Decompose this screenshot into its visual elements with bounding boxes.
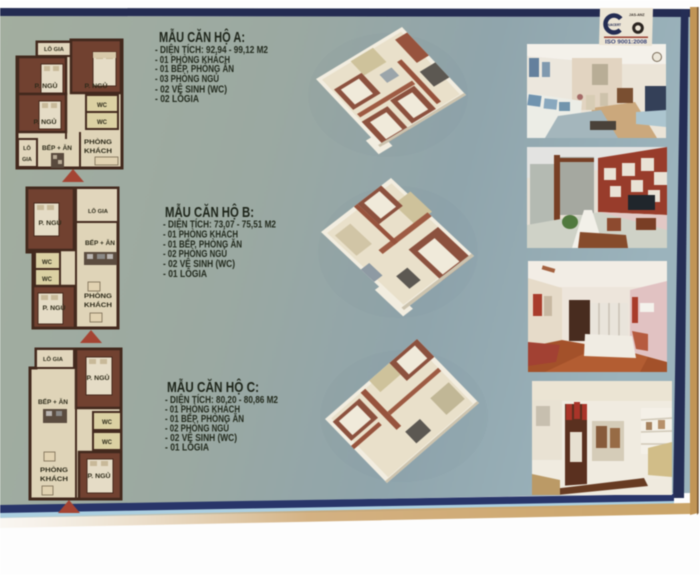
svg-text:GIA: GIA [22, 157, 32, 163]
svg-text:P. NGỦ: P. NGỦ [87, 375, 110, 382]
svg-text:LÔ GIA: LÔ GIA [44, 45, 64, 53]
svg-text:KHÁCH: KHÁCH [84, 302, 112, 309]
svg-text:- 01 LÔGIA: - 01 LÔGIA [163, 267, 207, 280]
svg-text:WC: WC [102, 420, 113, 426]
svg-text:P. NGỦ: P. NGỦ [35, 83, 58, 90]
svg-text:PHÒNG: PHÒNG [84, 292, 112, 300]
svg-text:- 03 PHÒNG NGỦ: - 03 PHÒNG NGỦ [155, 72, 219, 85]
svg-text:BẾP + ĂN: BẾP + ĂN [42, 145, 72, 152]
svg-text:MẪU CĂN HỘ C:: MẪU CĂN HỘ C: [167, 378, 259, 396]
svg-text:JAS-ANZ: JAS-ANZ [629, 13, 645, 17]
svg-text:P. NGỦ: P. NGỦ [39, 220, 62, 227]
svg-text:ISO 9001:2008: ISO 9001:2008 [605, 40, 648, 46]
svg-text:BẾP + ĂN: BẾP + ĂN [38, 399, 68, 406]
svg-text:P. NGỦ: P. NGỦ [43, 305, 66, 312]
svg-text:PHÒNG: PHÒNG [84, 138, 112, 146]
svg-text:WC: WC [42, 260, 53, 266]
svg-text:QUACERT: QUACERT [606, 23, 622, 27]
svg-text:WC: WC [102, 440, 113, 446]
svg-text:WC: WC [97, 103, 108, 109]
svg-text:WC: WC [97, 120, 108, 126]
svg-text:BẾP + ĂN: BẾP + ĂN [85, 240, 115, 247]
svg-text:LÔ: LÔ [23, 144, 31, 152]
svg-text:WC: WC [42, 277, 53, 283]
svg-text:KHÁCH: KHÁCH [84, 148, 112, 155]
svg-text:P. NGỦ: P. NGỦ [88, 473, 111, 480]
svg-text:P. NGỦ: P. NGỦ [85, 83, 108, 90]
svg-text:P. NGỦ: P. NGỦ [34, 119, 57, 126]
svg-text:LÔ GIA: LÔ GIA [43, 355, 63, 363]
svg-text:- 01 LÔGIA: - 01 LÔGIA [165, 441, 209, 454]
svg-text:MẪU CĂN HỘ B:: MẪU CĂN HỘ B: [165, 203, 254, 221]
svg-text:PHÒNG: PHÒNG [40, 466, 68, 474]
svg-text:MẪU CĂN HỘ A:: MẪU CĂN HỘ A: [159, 28, 245, 46]
svg-text:KHÁCH: KHÁCH [40, 476, 68, 483]
svg-text:LÔ GIA: LÔ GIA [88, 207, 108, 215]
svg-text:- 02 LÔGIA: - 02 LÔGIA [155, 92, 199, 105]
